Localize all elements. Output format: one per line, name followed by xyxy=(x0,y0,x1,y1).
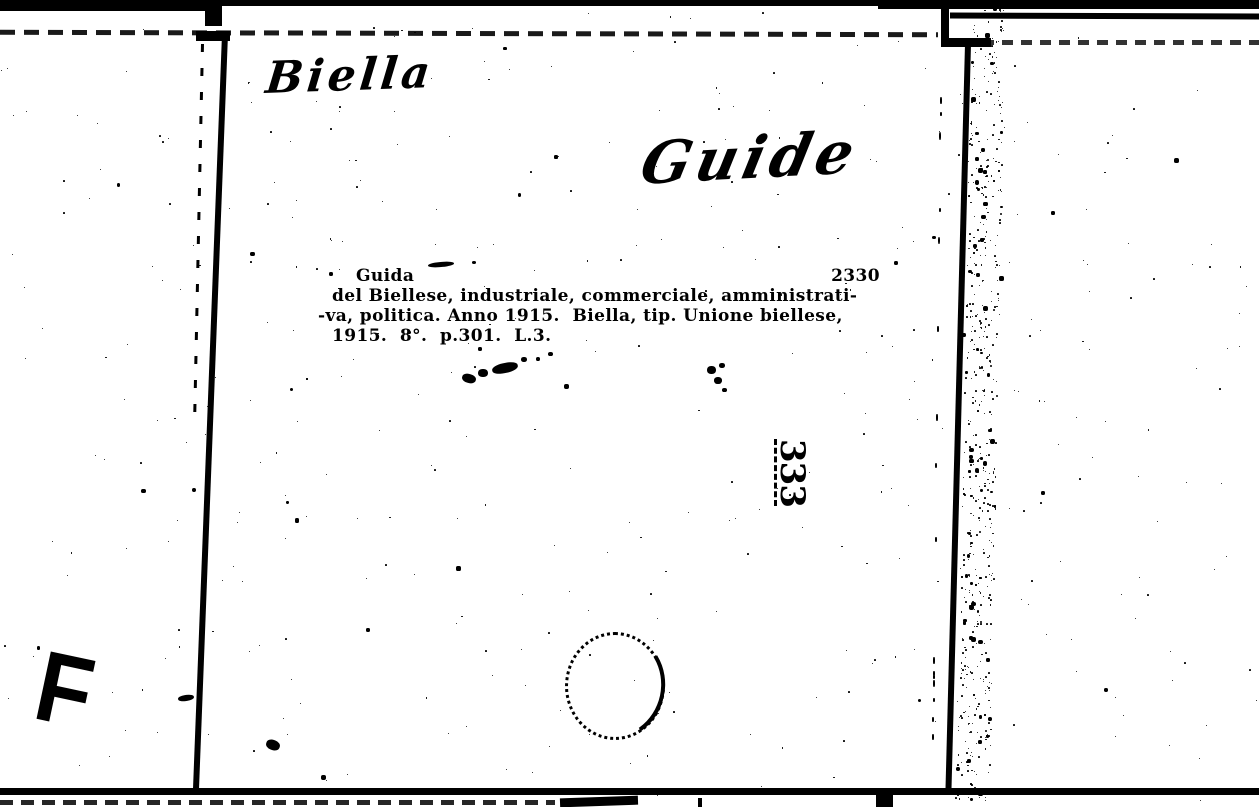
ink-dash xyxy=(178,694,195,702)
card-top-edge-dashed-line xyxy=(0,30,938,37)
entry-title: Guida xyxy=(356,266,414,286)
card-top-right-dashed-line xyxy=(945,40,1259,45)
card-left-edge-dashed-line xyxy=(193,44,204,414)
ring-stain-mark xyxy=(565,632,665,740)
scan-bottom-edge-line xyxy=(0,788,1259,795)
ink-dot xyxy=(722,388,727,392)
entry-line: 1915. 8°. p.301. L.3. xyxy=(318,326,880,346)
entry-number: 2330 xyxy=(831,266,880,286)
ink-dot xyxy=(719,363,725,368)
ink-dot xyxy=(472,261,476,264)
entry-line: -va, politica. Anno 1915. Biella, tip. U… xyxy=(318,306,880,326)
ink-dot xyxy=(548,352,553,356)
scan-bottom-tick xyxy=(698,798,702,807)
scan-bottom-smudge xyxy=(560,796,638,807)
scanned-catalog-card: Biella Guide Guida 2330 del Biellese, in… xyxy=(0,0,1259,807)
ink-smudge xyxy=(478,369,488,377)
card-right-edge-line xyxy=(945,44,971,794)
ink-smudge xyxy=(491,360,519,375)
scan-bottom-blob xyxy=(876,795,893,807)
vertical-stamp-number: 333 xyxy=(770,437,812,509)
ink-dot xyxy=(714,377,722,384)
card-top-right-edge-line xyxy=(950,12,1259,19)
ink-dot xyxy=(707,366,716,374)
ink-smudge xyxy=(521,357,527,362)
scan-top-edge-line xyxy=(878,0,1259,9)
handwritten-heading-annotation: Guide xyxy=(635,118,866,198)
scan-bottom-dashed-line xyxy=(0,800,555,805)
entry-line: del Biellese, industriale, commerciale, … xyxy=(318,286,880,306)
ink-smudge xyxy=(461,372,477,384)
corner-letter: F xyxy=(27,635,102,744)
ink-dot xyxy=(265,738,282,752)
ink-dot xyxy=(536,357,540,361)
handwritten-place-annotation: Biella xyxy=(263,47,436,104)
printed-entry: Guida 2330 del Biellese, industriale, co… xyxy=(318,266,880,346)
